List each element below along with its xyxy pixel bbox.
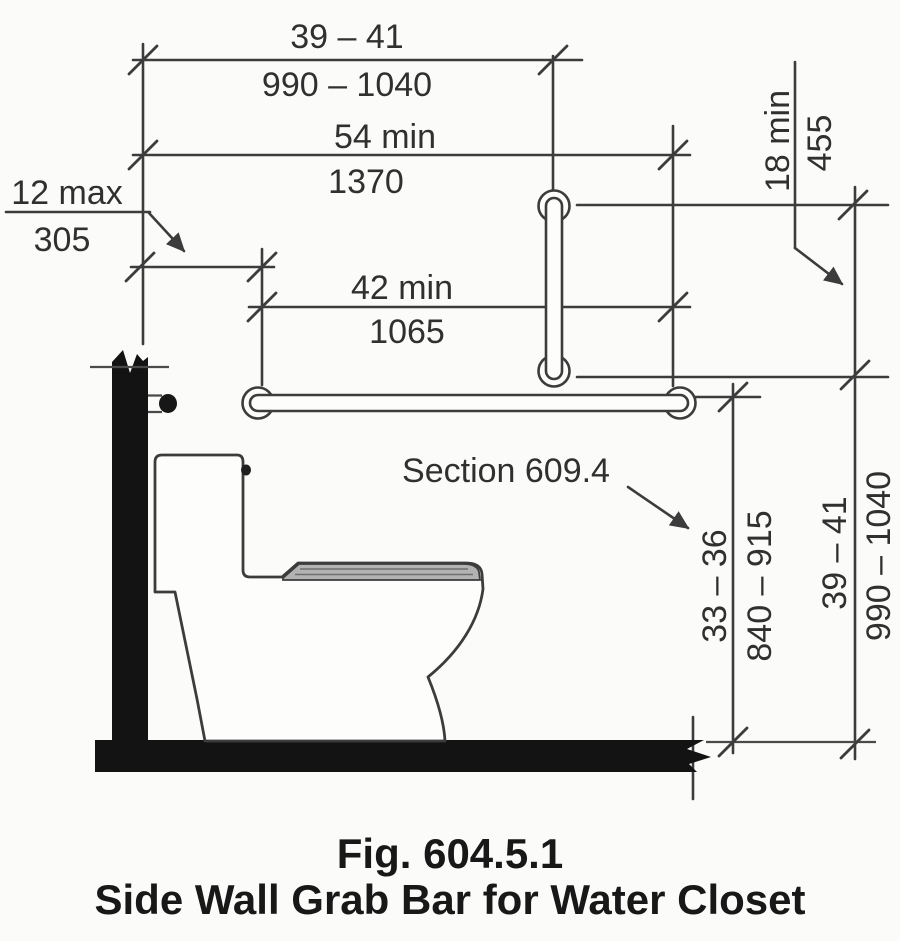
water-closet xyxy=(155,455,483,741)
vertical-grab-bar xyxy=(539,191,570,387)
dim-right-39-41-mm-label: 990 – 1040 xyxy=(860,471,898,641)
wall-valve-icon xyxy=(148,394,177,413)
tank-lid-knob xyxy=(241,465,251,476)
dim-top-inches-label: 39 – 41 xyxy=(290,18,403,56)
dim-33-36-mm-label: 840 – 915 xyxy=(741,510,779,661)
caption-figure-number: Fig. 604.5.1 xyxy=(337,830,563,877)
dim-33-36-inches-label: 33 – 36 xyxy=(696,529,734,642)
dim-right-39-41-inches-label: 39 – 41 xyxy=(816,496,854,609)
dim-12max-mm-label: 305 xyxy=(34,221,91,259)
figure-caption: Fig. 604.5.1 Side Wall Grab Bar for Wate… xyxy=(94,830,805,923)
grab-bar-diagram: 39 – 41 990 – 1040 54 min 1370 12 max 30… xyxy=(0,0,900,941)
rear-wall xyxy=(112,350,148,772)
dim-top-mm-label: 990 – 1040 xyxy=(262,66,432,104)
figure-page: 39 – 41 990 – 1040 54 min 1370 12 max 30… xyxy=(0,0,900,941)
toilet-seat xyxy=(283,564,480,580)
leader-18-min xyxy=(795,248,842,284)
caption-figure-title: Side Wall Grab Bar for Water Closet xyxy=(94,876,805,923)
dim-18min-inches-label: 18 min xyxy=(759,90,797,192)
dim-54min-inches-label: 54 min xyxy=(334,118,436,156)
side-bar-tube xyxy=(250,395,688,411)
section-reference-label: Section 609.4 xyxy=(402,452,610,490)
dim-42min-mm-label: 1065 xyxy=(369,313,445,351)
dim-54min-mm-label: 1370 xyxy=(328,163,404,201)
leader-12-max xyxy=(149,213,184,251)
leader-section-609-4 xyxy=(628,487,688,528)
dim-18min-mm-label: 455 xyxy=(801,115,839,172)
vertical-bar-tube xyxy=(546,198,562,379)
side-wall-grab-bar xyxy=(243,388,696,419)
dim-42min-inches-label: 42 min xyxy=(351,269,453,307)
floor xyxy=(95,740,711,772)
dim-12max-inches-label: 12 max xyxy=(11,174,123,212)
